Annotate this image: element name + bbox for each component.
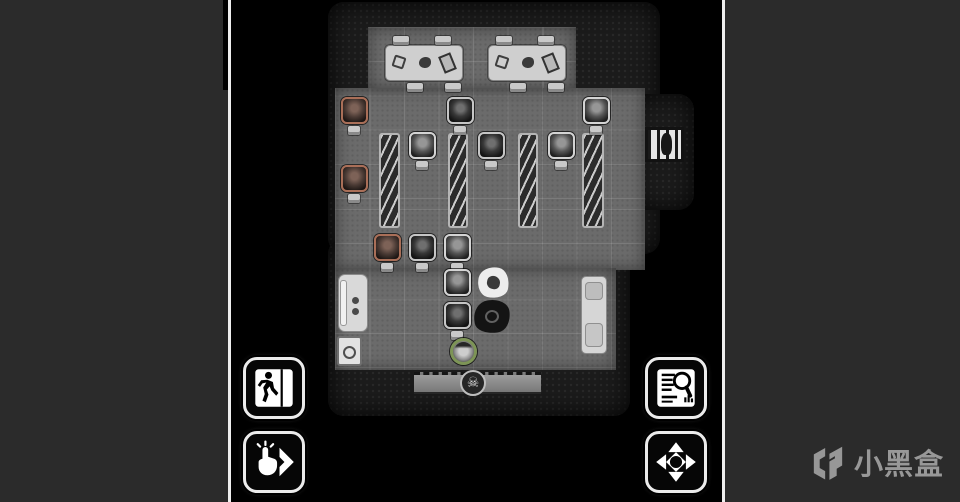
four-arrows-icon — [654, 440, 698, 484]
enemy-token[interactable] — [444, 234, 471, 261]
enemy-token[interactable] — [478, 132, 505, 159]
inspect-button[interactable] — [645, 357, 707, 419]
enemy-token[interactable] — [409, 132, 436, 159]
document-magnifier-icon — [654, 366, 698, 410]
chair — [445, 83, 461, 92]
enemy-token[interactable] — [583, 97, 610, 124]
chair — [548, 83, 564, 92]
watermark-text: 小黑盒 — [854, 450, 944, 479]
chair — [348, 126, 360, 135]
table — [385, 45, 463, 81]
chair — [590, 126, 602, 135]
bookshelf — [448, 133, 468, 228]
dungeon-map: ☠ — [231, 0, 722, 502]
bookshelf — [582, 133, 604, 228]
enemy-token[interactable] — [341, 165, 368, 192]
bookshelf — [518, 133, 538, 228]
enemy-token[interactable] — [409, 234, 436, 261]
crate — [337, 336, 362, 366]
exit-run-icon — [252, 366, 296, 410]
chair — [348, 194, 360, 203]
move-pan-button[interactable] — [645, 431, 707, 493]
shelf — [581, 276, 607, 354]
bed — [338, 274, 368, 332]
chair — [407, 83, 423, 92]
bookshelf — [379, 133, 400, 228]
heybox-logo-icon — [811, 446, 845, 482]
page-background-left — [0, 0, 228, 502]
page-background-right: 小黑盒 — [725, 0, 960, 502]
enemy-token[interactable] — [444, 269, 471, 296]
enemy-token[interactable] — [447, 97, 474, 124]
exit-button[interactable] — [243, 357, 305, 419]
watermark: 小黑盒 — [811, 446, 944, 482]
chair — [510, 83, 526, 92]
tap-advance-button[interactable] — [243, 431, 305, 493]
enemy-token[interactable] — [374, 234, 401, 261]
enemy-token[interactable] — [548, 132, 575, 159]
chair — [496, 36, 512, 45]
enemy-token[interactable] — [444, 302, 471, 329]
chair — [416, 161, 428, 170]
chair — [485, 161, 497, 170]
chair — [555, 161, 567, 170]
player-token[interactable] — [450, 338, 477, 365]
tap-hand-chevron-icon — [252, 440, 296, 484]
enemy-token[interactable] — [341, 97, 368, 124]
chair — [393, 36, 409, 45]
chair — [454, 126, 466, 135]
game-screen: ☠ — [231, 0, 722, 502]
chair — [538, 36, 554, 45]
skull-marker: ☠ — [460, 370, 486, 396]
barred-doorway[interactable] — [645, 127, 684, 162]
chair — [381, 263, 393, 272]
chair — [416, 263, 428, 272]
table — [488, 45, 566, 81]
page: ☠ — [0, 0, 960, 502]
chair — [435, 36, 451, 45]
